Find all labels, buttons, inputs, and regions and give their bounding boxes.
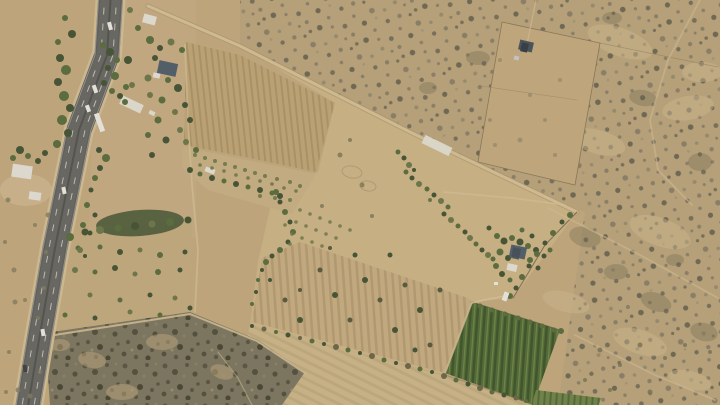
scene-layers bbox=[0, 0, 720, 405]
aerial-photo: Aerial drone view of a highway running d… bbox=[0, 0, 720, 405]
film-grain bbox=[0, 0, 720, 405]
aerial-photo-canvas bbox=[0, 0, 720, 405]
